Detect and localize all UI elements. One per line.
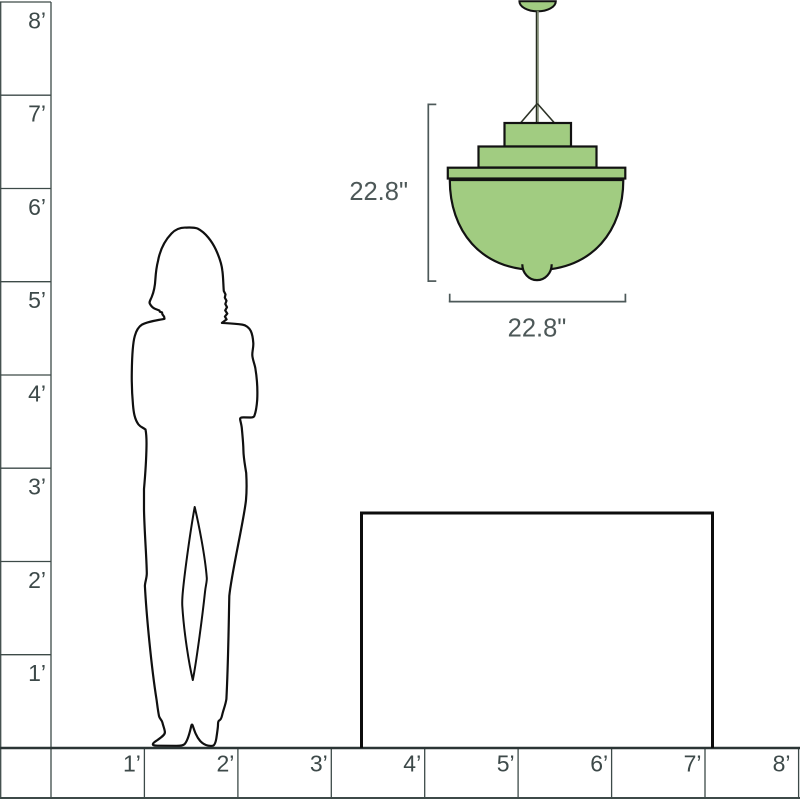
svg-text:2’: 2’ [28,567,46,593]
svg-text:1’: 1’ [28,660,46,686]
svg-text:3’: 3’ [310,751,328,777]
svg-text:8’: 8’ [773,751,791,777]
svg-text:6’: 6’ [28,194,46,220]
svg-text:8’: 8’ [28,8,46,34]
svg-text:5’: 5’ [497,751,515,777]
svg-text:3’: 3’ [28,474,46,500]
svg-text:5’: 5’ [28,287,46,313]
svg-text:22.8": 22.8" [508,315,567,343]
svg-text:2’: 2’ [216,751,234,777]
svg-text:6’: 6’ [590,751,608,777]
svg-text:7’: 7’ [684,751,702,777]
svg-text:22.8": 22.8" [349,178,408,206]
svg-text:4’: 4’ [28,381,46,407]
svg-text:1’: 1’ [123,751,141,777]
svg-text:4’: 4’ [403,751,421,777]
svg-text:7’: 7’ [28,101,46,127]
